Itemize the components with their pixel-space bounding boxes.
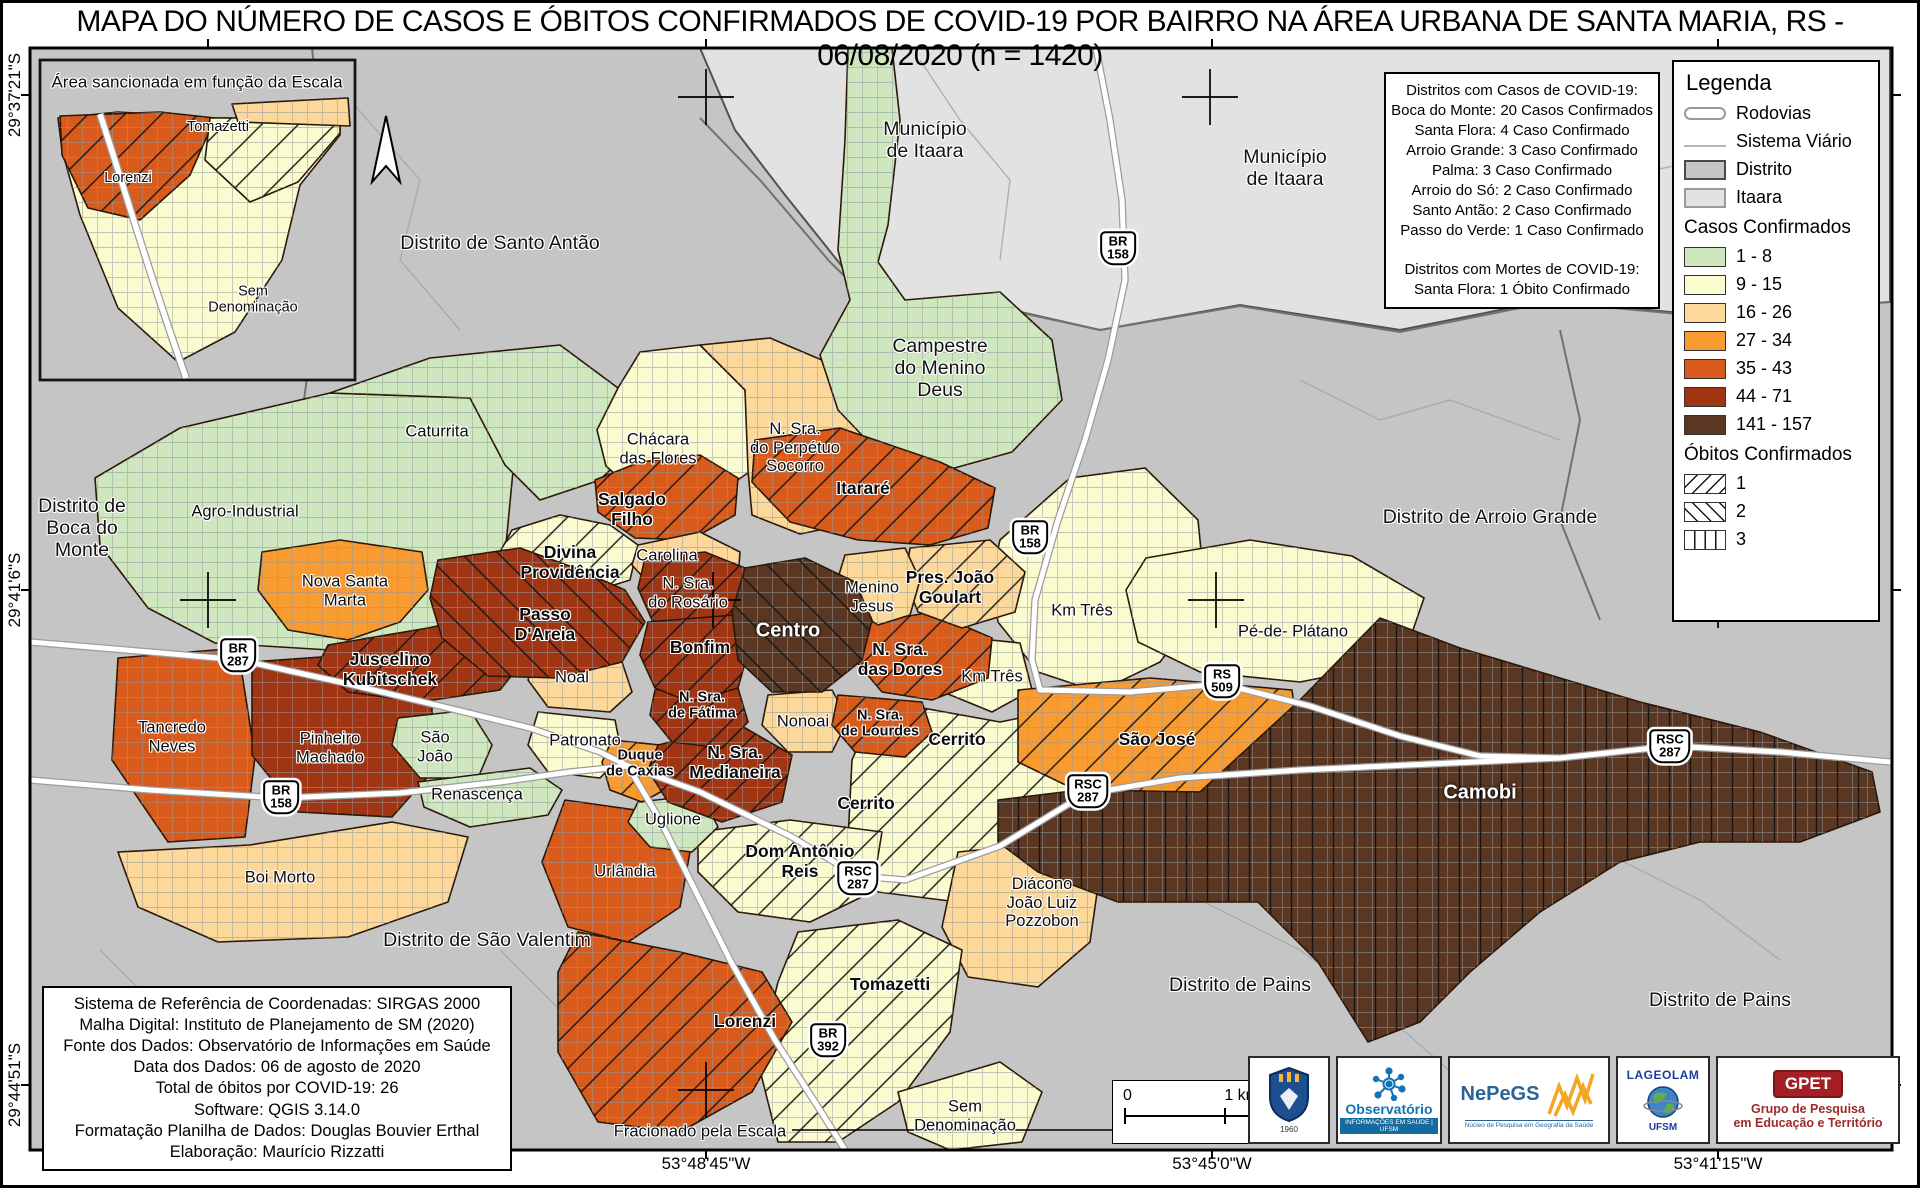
legend-item-distrito: Distrito — [1684, 159, 1868, 180]
credit-line: Formatação Planilha de Dados: Douglas Bo… — [44, 1121, 510, 1142]
legend-class-141-157-label: 141 - 157 — [1736, 414, 1812, 435]
info-line: Santa Flora: 4 Caso Confirmado — [1389, 121, 1655, 141]
legend-class-1-8: 1 - 8 — [1684, 246, 1868, 267]
legend-death-3: 3 — [1684, 529, 1868, 550]
legend-cases-header: Casos Confirmados — [1684, 217, 1868, 239]
observatorio-network-icon — [1372, 1067, 1406, 1101]
logo-lageolam: LAGEOLAM UFSM — [1616, 1056, 1710, 1144]
nepegs-title: NePeGS — [1461, 1083, 1540, 1106]
legend-death-3-swatch — [1684, 530, 1726, 550]
scale-tick-start — [1124, 1108, 1126, 1124]
districts-cases-info-lines: Distritos com Casos de COVID-19:Boca do … — [1389, 81, 1655, 300]
legend-class-141-157-swatch — [1684, 415, 1726, 435]
logo-nepegs: NePeGS Núcleo de Pesquisa em Geografia d… — [1448, 1056, 1610, 1144]
legend-item-distrito-label: Distrito — [1736, 159, 1792, 180]
logos-strip: 1960 Observatório INFORMAÇÕES EM SAÚDE |… — [1248, 1056, 1900, 1144]
legend-item-distrito-swatch — [1684, 160, 1726, 180]
legend-class-1-8-swatch — [1684, 247, 1726, 267]
scale-bar: 0 1 km — [1112, 1080, 1270, 1144]
info-line: Boca do Monte: 20 Casos Confirmados — [1389, 101, 1655, 121]
legend-class-1-8-label: 1 - 8 — [1736, 246, 1772, 267]
legend-death-1-label: 1 — [1736, 473, 1746, 494]
credit-line: Sistema de Referência de Coordenadas: SI… — [44, 994, 510, 1015]
legend-class-16-26: 16 - 26 — [1684, 302, 1868, 323]
legend-class-35-43-swatch — [1684, 359, 1726, 379]
logo-observatorio: Observatório INFORMAÇÕES EM SAÚDE | UFSM — [1336, 1056, 1442, 1144]
credits-lines: Sistema de Referência de Coordenadas: SI… — [44, 994, 510, 1163]
legend-item-itaara-label: Itaara — [1736, 187, 1782, 208]
inset-map — [40, 60, 355, 380]
gpet-subtitle: Grupo de Pesquisa em Educação e Territór… — [1733, 1102, 1882, 1131]
ufsm-year: 1960 — [1280, 1125, 1298, 1134]
legend-class-27-34-swatch — [1684, 331, 1726, 351]
legend-death-2-label: 2 — [1736, 501, 1746, 522]
legend-case-classes: 1 - 89 - 1516 - 2627 - 3435 - 4344 - 711… — [1684, 246, 1868, 435]
credit-line: Elaboração: Maurício Rizzatti — [44, 1142, 510, 1163]
info-line: Distritos com Casos de COVID-19: — [1389, 81, 1655, 101]
logo-gpet: GPET Grupo de Pesquisa em Educação e Ter… — [1716, 1056, 1900, 1144]
lageolam-title: LAGEOLAM — [1627, 1068, 1700, 1082]
legend-item-sistema-vi-rio-label: Sistema Viário — [1736, 131, 1852, 152]
credits-box: Sistema de Referência de Coordenadas: SI… — [42, 986, 512, 1171]
map-title: MAPA DO NÚMERO DE CASOS E ÓBITOS CONFIRM… — [0, 5, 1920, 73]
scale-bar-labels: 0 1 km — [1123, 1087, 1259, 1105]
legend-death-1: 1 — [1684, 473, 1868, 494]
scale-zero-label: 0 — [1123, 1087, 1132, 1105]
legend-deaths-header: Óbitos Confirmados — [1684, 444, 1868, 466]
legend-item-itaara: Itaara — [1684, 187, 1868, 208]
scale-tick-mid — [1224, 1108, 1226, 1124]
lageolam-globe-icon — [1643, 1082, 1683, 1122]
info-line: Palma: 3 Caso Confirmado — [1389, 161, 1655, 181]
scale-bar-graphic — [1123, 1108, 1259, 1124]
info-line: Arroio Grande: 3 Caso Confirmado — [1389, 141, 1655, 161]
legend-class-9-15: 9 - 15 — [1684, 274, 1868, 295]
info-line: Distritos com Mortes de COVID-19: — [1389, 260, 1655, 280]
info-line: Santo Antão: 2 Caso Confirmado — [1389, 201, 1655, 221]
info-line — [1389, 241, 1655, 261]
legend-death-2-swatch — [1684, 502, 1726, 522]
legend-class-27-34: 27 - 34 — [1684, 330, 1868, 351]
credit-line: Fonte dos Dados: Observatório de Informa… — [44, 1036, 510, 1057]
legend-death-2: 2 — [1684, 501, 1868, 522]
legend-death-1-swatch — [1684, 474, 1726, 494]
info-line: Santa Flora: 1 Óbito Confirmado — [1389, 280, 1655, 300]
legend-class-44-71-swatch — [1684, 387, 1726, 407]
credit-line: Malha Digital: Instituto de Planejamento… — [44, 1015, 510, 1036]
legend-class-16-26-label: 16 - 26 — [1736, 302, 1792, 323]
legend-item-rodovias: Rodovias — [1684, 103, 1868, 124]
legend-class-44-71-label: 44 - 71 — [1736, 386, 1792, 407]
logo-ufsm: 1960 — [1248, 1056, 1330, 1144]
info-line: Passo do Verde: 1 Caso Confirmado — [1389, 221, 1655, 241]
nepegs-subtitle: Núcleo de Pesquisa em Geografia da Saúde — [1465, 1120, 1594, 1129]
credit-line: Software: QGIS 3.14.0 — [44, 1100, 510, 1121]
legend-class-16-26-swatch — [1684, 303, 1726, 323]
legend-class-141-157: 141 - 157 — [1684, 414, 1868, 435]
legend-item-itaara-swatch — [1684, 188, 1726, 208]
credit-line: Total de óbitos por COVID-19: 26 — [44, 1078, 510, 1099]
legend-class-27-34-label: 27 - 34 — [1736, 330, 1792, 351]
credit-line: Data dos Dados: 06 de agosto de 2020 — [44, 1057, 510, 1078]
legend-class-44-71: 44 - 71 — [1684, 386, 1868, 407]
lageolam-footer: UFSM — [1649, 1122, 1677, 1133]
legend-class-9-15-label: 9 - 15 — [1736, 274, 1782, 295]
observatorio-title: Observatório — [1345, 1101, 1432, 1117]
legend-item-sistema-vi-rio: Sistema Viário — [1684, 131, 1868, 152]
ufsm-shield-icon — [1267, 1066, 1311, 1124]
scale-bar-line — [1124, 1115, 1258, 1117]
districts-cases-info-box: Distritos com Casos de COVID-19:Boca do … — [1384, 72, 1660, 309]
legend-class-9-15-swatch — [1684, 275, 1726, 295]
legend-title: Legenda — [1686, 70, 1868, 96]
legend-item-rodovias-label: Rodovias — [1736, 103, 1811, 124]
info-line: Arroio do Só: 2 Caso Confirmado — [1389, 181, 1655, 201]
legend-class-35-43: 35 - 43 — [1684, 358, 1868, 379]
gpet-badge: GPET — [1773, 1070, 1843, 1098]
legend-item-rodovias-swatch — [1684, 107, 1726, 120]
legend-class-35-43-label: 35 - 43 — [1736, 358, 1792, 379]
legend: Legenda RodoviasSistema ViárioDistritoIt… — [1672, 60, 1880, 622]
legend-item-sistema-vi-rio-swatch — [1684, 145, 1726, 147]
legend-items: RodoviasSistema ViárioDistritoItaara — [1684, 103, 1868, 208]
nepegs-zigzag-icon — [1545, 1072, 1597, 1118]
legend-death-3-label: 3 — [1736, 529, 1746, 550]
legend-death-classes: 123 — [1684, 473, 1868, 550]
observatorio-subtitle: INFORMAÇÕES EM SAÚDE | UFSM — [1340, 1118, 1438, 1134]
